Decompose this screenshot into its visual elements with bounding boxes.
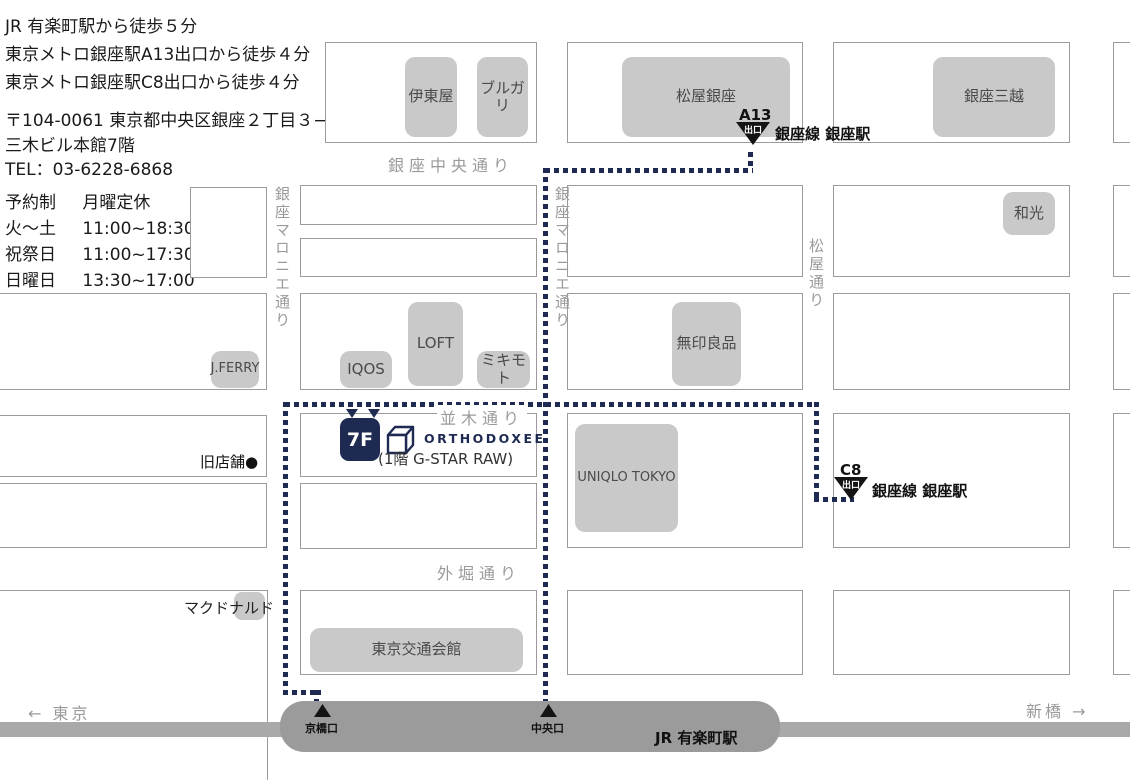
exit-a13-station-label: 銀座線 銀座駅	[775, 123, 870, 144]
street-maronie-dori-right: 銀座マロニエ通り	[552, 186, 573, 330]
exit-c8-station-label: 銀座線 銀座駅	[872, 480, 967, 501]
city-block	[0, 483, 267, 548]
city-block	[567, 590, 803, 675]
hours-value-1: 月曜定休	[82, 193, 150, 213]
building-itoya: 伊東屋	[405, 57, 457, 137]
building-jferry: J.FERRY	[211, 351, 259, 388]
street-namiki-dori: 並木通り	[437, 405, 527, 429]
chuo-exit-label: 中央口	[531, 720, 564, 736]
hours-label-3: 祝祭日	[5, 240, 77, 265]
city-block	[1113, 413, 1130, 548]
city-block	[833, 590, 1070, 675]
hours-value-3: 11:00~17:30	[82, 245, 194, 265]
access-line-3: 東京メトロ銀座駅C8出口から徒歩４分	[5, 68, 300, 93]
kyobashi-exit-label: 京橋口	[305, 720, 338, 736]
city-block	[300, 483, 537, 549]
mcdonalds-label: マクドナルド	[184, 597, 274, 618]
city-block	[300, 238, 537, 277]
store-first-floor-note: (1階 G-STAR RAW)	[378, 448, 513, 469]
hours-value-4: 13:30~17:00	[82, 271, 194, 291]
street-sotobori-dori: 外堀通り	[437, 560, 521, 584]
building-loft: LOFT	[408, 302, 463, 386]
route-c8-vertical	[814, 402, 819, 502]
store-floor-label: 7F	[347, 429, 373, 451]
street-maronie-dori-left: 銀座マロニエ通り	[272, 186, 293, 330]
city-block	[567, 185, 803, 277]
store-name: ORTHODOXEE	[424, 431, 546, 446]
exit-a13-code: A13	[739, 106, 771, 124]
direction-shimbashi-label: 新橋 →	[1026, 698, 1089, 722]
building-uniqlo: UNIQLO TOKYO	[575, 424, 678, 532]
city-block	[1113, 42, 1130, 143]
building-wako: 和光	[1003, 192, 1055, 235]
city-block	[1113, 293, 1130, 390]
hours-row-3: 祝祭日 11:00~17:30	[5, 240, 195, 265]
hours-row-4: 日曜日 13:30~17:00	[5, 266, 195, 291]
tel-line: TEL：03-6228-6868	[5, 155, 173, 180]
street-ginza-chuo-dori: 銀座中央通り	[388, 152, 514, 176]
city-block	[0, 590, 268, 780]
access-line-1: JR 有楽町駅から徒歩５分	[5, 12, 197, 37]
building-iqos: IQOS	[340, 351, 392, 388]
hours-value-2: 11:00~18:30	[82, 219, 194, 239]
city-block	[300, 185, 537, 225]
building-mitsukoshi: 銀座三越	[933, 57, 1055, 137]
building-bulgari: ブルガリ	[477, 57, 528, 137]
route-c8-horizontal	[814, 497, 854, 502]
building-mikimoto: ミキモト	[477, 351, 530, 388]
jr-station-label: JR 有楽町駅	[655, 727, 737, 748]
store-floor-badge: 7F	[340, 418, 380, 461]
address-line: 〒104-0061 東京都中央区銀座２丁目３−５	[5, 106, 345, 131]
building-kotsu-kaikan: 東京交通会館	[310, 628, 523, 672]
street-matsuya-dori: 松屋通り	[806, 238, 827, 310]
route-a13-horizontal	[545, 168, 753, 173]
building-line: 三木ビル本館7階	[5, 131, 135, 156]
route-west-vertical	[283, 402, 288, 693]
access-map: JR 有楽町駅から徒歩５分 東京メトロ銀座駅A13出口から徒歩４分 東京メトロ銀…	[0, 0, 1130, 780]
former-store-label: 旧店舗●	[200, 451, 258, 472]
hours-label-1: 予約制	[5, 188, 77, 213]
direction-tokyo-label: ← 東京	[28, 700, 91, 724]
city-block	[1113, 185, 1130, 277]
hours-row-2: 火～土 11:00~18:30	[5, 214, 195, 239]
city-block	[1113, 590, 1130, 675]
city-block	[833, 293, 1070, 390]
access-line-2: 東京メトロ銀座駅A13出口から徒歩４分	[5, 40, 310, 65]
exit-c8-code: C8	[840, 461, 861, 479]
hours-label-2: 火～土	[5, 214, 77, 239]
hours-row-1: 予約制 月曜定休	[5, 188, 150, 213]
hours-label-4: 日曜日	[5, 266, 77, 291]
city-block	[190, 187, 267, 278]
building-muji: 無印良品	[672, 302, 741, 386]
route-namiki-horizontal	[285, 402, 818, 407]
